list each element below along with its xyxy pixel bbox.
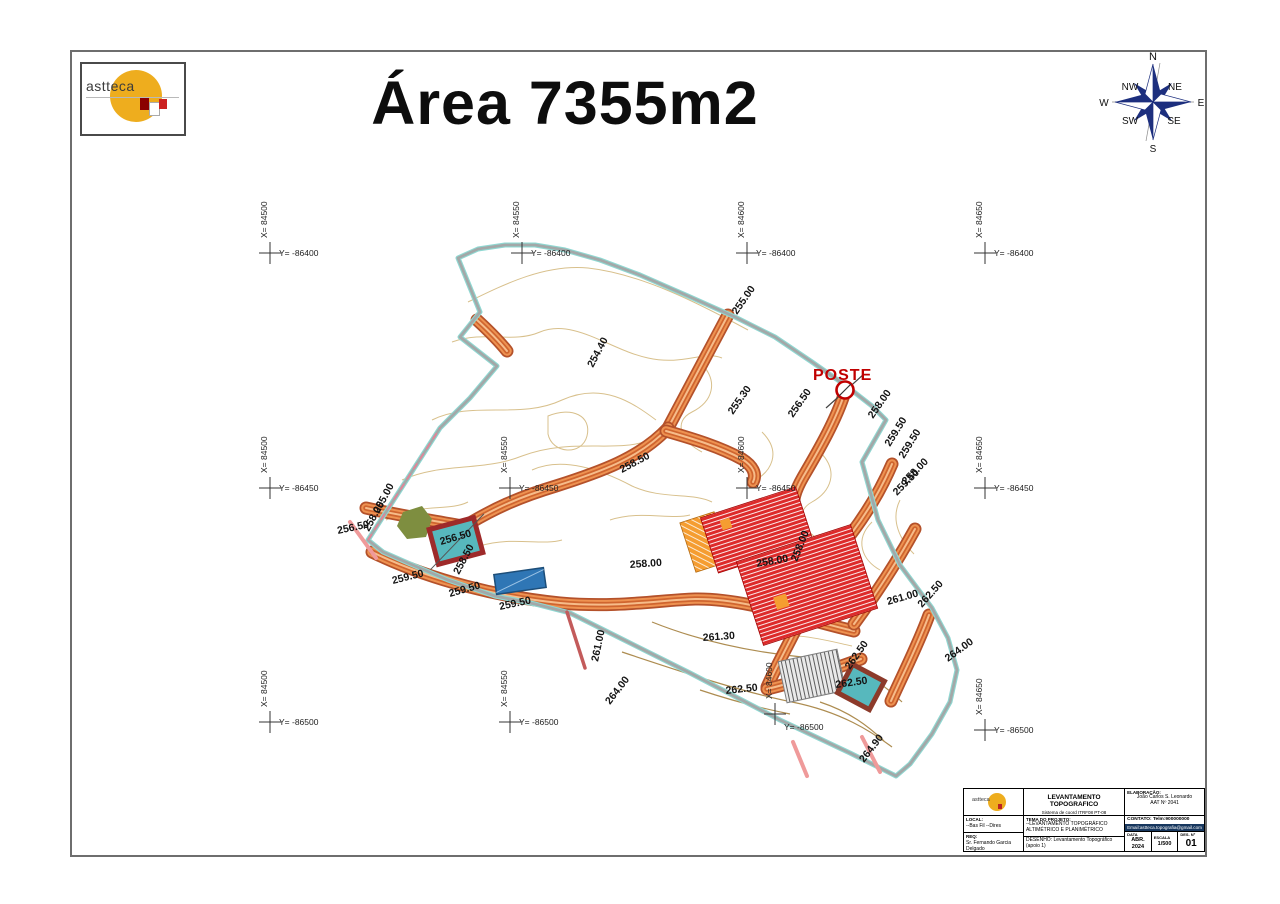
svg-text:X= 84650: X= 84650: [974, 678, 984, 715]
compass-w-label: W: [1099, 98, 1109, 109]
titleblock-local-cell: LOCAL: --Bas Fil --Dires: [964, 816, 1023, 833]
drawing-sheet: astteca Área 7355m2: [0, 0, 1280, 904]
elevation-label: 261.30: [702, 630, 735, 644]
grid-cross: X= 84550 Y= -86500: [499, 670, 559, 733]
svg-text:X= 84650: X= 84650: [974, 201, 984, 238]
compass-nw-label: NW: [1122, 82, 1139, 93]
svg-text:X= 84500: X= 84500: [259, 670, 269, 707]
drawing-number-cell: DES. Nº 01: [1178, 832, 1204, 851]
elevation-label: 262.50: [725, 682, 758, 697]
topographic-map: POSTE 254.40 255.00 255.30 256.50 258.00…: [0, 0, 1280, 904]
svg-text:Y= -86450: Y= -86450: [279, 483, 319, 493]
svg-text:Y= -86500: Y= -86500: [279, 717, 319, 727]
grid-cross: X= 84650 Y= -86500: [974, 678, 1034, 741]
elevation-label: 261.00: [886, 587, 920, 607]
svg-text:Y= -86500: Y= -86500: [519, 717, 559, 727]
titleblock-logo-square: [998, 804, 1002, 809]
titleblock-title-cell: LEVANTAMENTO TOPOGRAFICO Sistema de coor…: [1024, 789, 1124, 816]
grid-cross: X= 84550 Y= -86450: [499, 436, 559, 499]
req-value: Sr. Fernando Garcia Delgado: [966, 841, 1021, 851]
grid-cross: X= 84650 Y= -86450: [974, 436, 1034, 499]
elevation-label: 256.50: [786, 386, 814, 419]
drawing-number-value: 01: [1178, 838, 1204, 850]
svg-text:X= 84500: X= 84500: [259, 436, 269, 473]
elevation-label: 255.00: [730, 283, 758, 316]
title-block: astteca LOCAL: --Bas Fil --Dires REQ: Sr…: [963, 788, 1205, 852]
svg-text:X= 84600: X= 84600: [736, 436, 746, 473]
titleblock-logo: astteca: [964, 789, 1023, 816]
elevation-label: 264.00: [603, 674, 632, 707]
grid-cross: X= 84650 Y= -86400: [974, 201, 1034, 264]
svg-text:X= 84600: X= 84600: [764, 662, 774, 699]
compass-n-label: N: [1149, 51, 1157, 63]
tema-value: --LEVANTAMENTO TOPOGRÁFICO ALTIMÉTRICO E…: [1026, 822, 1122, 834]
compass-se-label: SE: [1167, 116, 1181, 127]
svg-text:X= 84650: X= 84650: [974, 436, 984, 473]
svg-text:X= 84550: X= 84550: [499, 436, 509, 473]
compass-e-label: E: [1198, 98, 1205, 109]
compass-sw-label: SW: [1122, 116, 1139, 127]
svg-text:Y= -86400: Y= -86400: [994, 248, 1034, 258]
compass-rose: N NE E SE S SW W NW: [1099, 51, 1204, 155]
svg-text:Y= -86400: Y= -86400: [531, 248, 571, 258]
titleblock-dates-row: DATA ABR. 2024 ESCALA 1/500 DES. Nº 01: [1125, 832, 1204, 851]
grid-cross: X= 84550 Y= -86400: [511, 201, 571, 264]
titleblock-contact-cell: CONTATO: Telm:900000000 Email:astteca.to…: [1125, 816, 1204, 832]
grid-cross: X= 84500 Y= -86500: [259, 670, 319, 733]
svg-text:Y= -86400: Y= -86400: [756, 248, 796, 258]
svg-text:Y= -86500: Y= -86500: [784, 722, 824, 732]
titleblock-elab-cell: ELABORAÇÃO: João Carlos S. Leonardo AAT …: [1125, 789, 1204, 816]
elab-reg: AAT Nº 2041: [1127, 801, 1202, 807]
elevation-label: 261.00: [589, 629, 607, 663]
grid-cross: X= 84600 Y= -86400: [736, 201, 796, 264]
compass-ne-label: NE: [1168, 82, 1182, 93]
scale-cell: ESCALA 1/500: [1152, 832, 1179, 851]
svg-text:Y= -86400: Y= -86400: [279, 248, 319, 258]
poste-label: POSTE: [813, 367, 872, 384]
elevation-label: 258.00: [629, 557, 662, 571]
svg-text:Y= -86450: Y= -86450: [994, 483, 1034, 493]
date-cell: DATA ABR. 2024: [1125, 832, 1152, 851]
svg-text:X= 84550: X= 84550: [499, 670, 509, 707]
contact-phone: CONTATO: Telm:900000000: [1125, 816, 1204, 824]
titleblock-logo-circle: [988, 793, 1006, 811]
titleblock-tema-cell: TEMA DO PROJETO: --LEVANTAMENTO TOPOGRÁF…: [1024, 816, 1124, 837]
desenho-value: DESENHO: Levantamento Topográfico (apoio…: [1026, 838, 1122, 850]
svg-text:Y= -86450: Y= -86450: [519, 483, 559, 493]
scale-value: 1/500: [1152, 841, 1178, 847]
svg-text:X= 84500: X= 84500: [259, 201, 269, 238]
svg-text:X= 84600: X= 84600: [736, 201, 746, 238]
req-header: REQ:: [966, 834, 977, 839]
elevation-label: 259.50: [391, 567, 425, 586]
svg-text:Y= -86450: Y= -86450: [756, 483, 796, 493]
svg-text:Y= -86500: Y= -86500: [994, 725, 1034, 735]
titleblock-title: LEVANTAMENTO TOPOGRAFICO: [1026, 794, 1122, 809]
contact-email: Email:astteca.topografia@gmail.com: [1125, 824, 1204, 831]
titleblock-req-cell: REQ: Sr. Fernando Garcia Delgado: [964, 833, 1023, 851]
grid-cross: X= 84600 Y= -86450: [736, 436, 796, 499]
elevation-label: 254.40: [585, 335, 611, 369]
elevation-label: 255.30: [726, 383, 754, 416]
water-tank-blue: [494, 568, 546, 595]
date-value: ABR. 2024: [1125, 837, 1151, 850]
compass-s-label: S: [1150, 144, 1157, 155]
svg-text:X= 84550: X= 84550: [511, 201, 521, 238]
titleblock-subtitle: Sistema de coord ITRF08 PT-08: [1026, 810, 1122, 815]
local-header: LOCAL:: [966, 817, 983, 822]
local-value: --Bas Fil --Dires: [966, 824, 1021, 830]
grid-cross: X= 84500 Y= -86400: [259, 201, 319, 264]
titleblock-desenho-cell: DESENHO: Levantamento Topográfico (apoio…: [1024, 837, 1124, 851]
grid-cross: X= 84500 Y= -86450: [259, 436, 319, 499]
titleblock-logo-text: astteca: [972, 797, 990, 803]
